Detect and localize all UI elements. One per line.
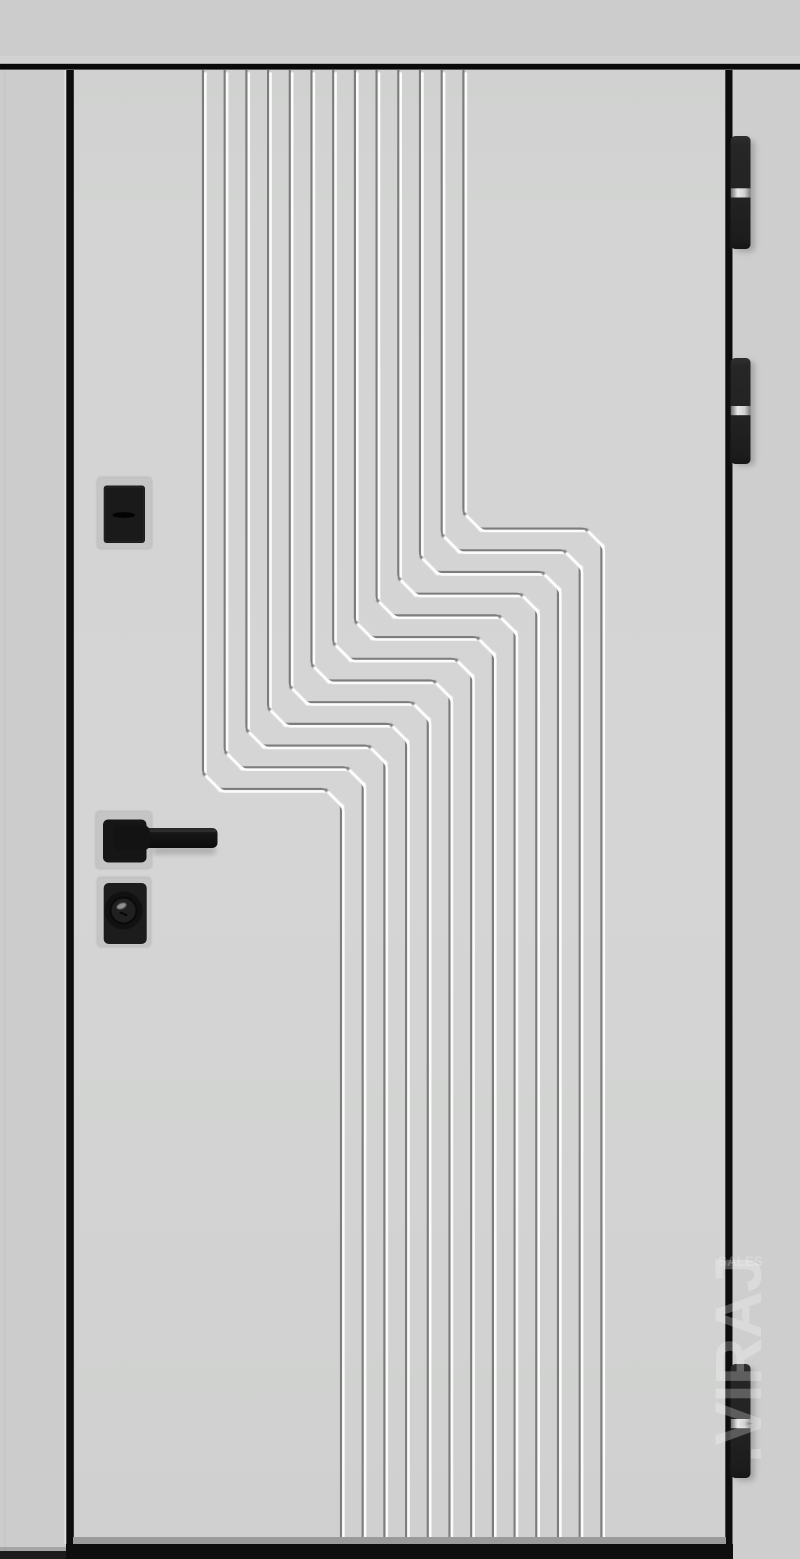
svg-text:.VIRAJ: .VIRAJ [701, 1256, 775, 1463]
svg-text:SALES: SALES [718, 1254, 763, 1269]
